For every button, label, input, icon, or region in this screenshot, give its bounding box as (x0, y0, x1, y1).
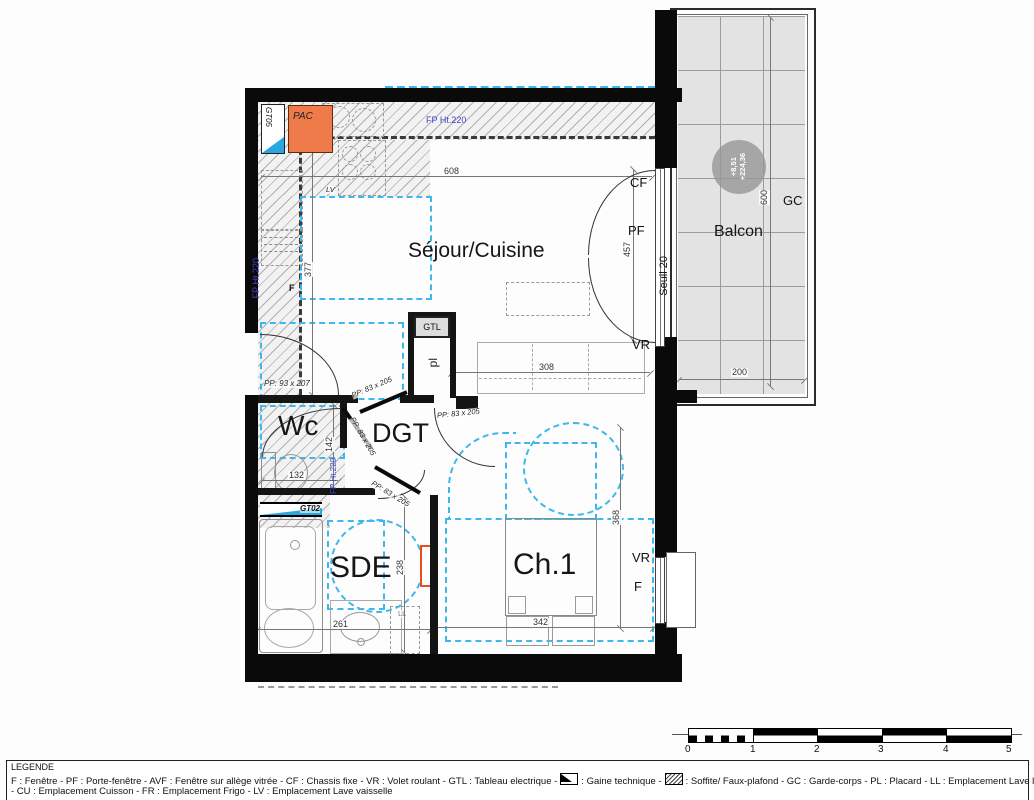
wall-left-lower (245, 395, 258, 682)
label-fp-wc: FP Ht.220 (330, 458, 338, 494)
window-ch1 (655, 557, 665, 624)
vanity-faucet (357, 638, 365, 646)
dim-142: 142 (324, 437, 335, 452)
label-vr-sejour: VR (632, 338, 650, 351)
label-cf: CF (630, 176, 647, 189)
floor-plan: +8,51 +224,36 Balcon GC 600 200 LV (0, 0, 1034, 800)
scalebar-tick-1: 1 (750, 744, 756, 755)
dim-261: 261 (332, 620, 349, 629)
dim-balcon-200: 200 (731, 368, 748, 377)
label-vr-ch1: VR (632, 551, 650, 564)
closet-pl-label: pl (426, 358, 440, 367)
legend-line-2: - CU : Emplacement Cuisson - FR : Emplac… (11, 786, 393, 798)
dim-457: 457 (622, 242, 633, 257)
dim-line-342 (433, 627, 653, 628)
dim-line-608 (262, 176, 652, 177)
bathtub-drain (290, 540, 300, 550)
wall-top (245, 88, 682, 102)
label-f-sejour: F (289, 284, 295, 293)
room-label-dgt: DGT (372, 420, 429, 447)
wall-bottom (245, 654, 682, 682)
kitchen-hob-ring (342, 164, 358, 180)
label-pf: PF (628, 224, 645, 237)
soffit-dash-bottom (258, 686, 558, 688)
radiator-outline (261, 230, 303, 266)
nightstand (552, 616, 595, 646)
label-ll: LL (398, 610, 406, 618)
legend-line1-b: : Gaine technique - (581, 776, 661, 787)
bathtub-inner (265, 526, 316, 610)
level-marker: +8,51 +224,36 (712, 140, 766, 194)
scalebar (688, 728, 1012, 743)
room-label-balcon: Balcon (714, 224, 763, 240)
legend-line1-c: : Soffite/ Faux-plafond - GC : Garde-cor… (686, 776, 1034, 787)
scalebar-seg-0 (689, 729, 753, 742)
dim-132: 132 (288, 471, 305, 480)
scalebar-tick-2: 2 (814, 744, 820, 755)
bed-corner (575, 596, 593, 614)
wall-right-upper (655, 10, 677, 168)
kitchen-sink-bowl-2 (352, 108, 376, 132)
sofa-divider (588, 344, 589, 390)
gtl-label: GTL (423, 322, 441, 332)
partition-sejour-south-left (258, 395, 358, 403)
dim-balcon-600: 600 (759, 190, 770, 205)
dim-308: 308 (538, 363, 555, 372)
gt02-label: GT02 (300, 504, 320, 513)
label-f-ch1: F (634, 580, 642, 593)
label-gc: GC (783, 194, 803, 207)
radiator-fin (264, 251, 298, 252)
dim-608: 608 (443, 167, 460, 176)
scalebar-seg-4 (946, 729, 1011, 742)
window-ch1-sill (666, 552, 696, 628)
label-fp-left: FP Ht.220 (252, 258, 261, 298)
dim-line-261 (258, 629, 430, 630)
room-label-wc: Wc (278, 412, 318, 440)
scalebar-tick-5: 5 (1006, 744, 1012, 755)
sofa-seat-line (479, 378, 641, 379)
dim-368: 368 (611, 510, 622, 525)
kitchen-hob-ring (360, 146, 376, 162)
wall-balcony-stub (677, 390, 697, 403)
scalebar-tick-3: 3 (878, 744, 884, 755)
gaine-technique-icon (560, 773, 578, 785)
scalebar-tick-4: 4 (943, 744, 949, 755)
scalebar-seg-2 (817, 729, 882, 742)
level-value-2: +224,36 (738, 153, 747, 180)
gt05-label: GT05 (264, 107, 273, 127)
fridge-outline (261, 170, 303, 230)
dim-line-132 (262, 480, 338, 481)
sofa-divider (532, 344, 533, 390)
room-label-sde: SDE (330, 553, 392, 583)
soffit-hatch-icon (665, 773, 683, 785)
label-fp-top: FP Ht.220 (426, 116, 466, 125)
scalebar-seg-3 (882, 729, 947, 742)
gaine-gt02: GT02 (260, 502, 322, 517)
dim-342: 342 (532, 618, 549, 627)
kitchen-hob-ring (360, 164, 376, 180)
sofa (477, 342, 645, 394)
room-label-sejour: Séjour/Cuisine (408, 240, 545, 261)
scalebar-tick-0: 0 (685, 744, 691, 755)
wall-right-lower (655, 622, 677, 682)
pac-unit: PAC (288, 105, 333, 153)
pac-label: PAC (293, 111, 313, 122)
bed-corner (508, 596, 526, 614)
dining-table (506, 282, 590, 316)
scalebar-seg-1 (753, 729, 818, 742)
wall-right-mid (655, 337, 677, 557)
balcony-dim-line-600 (770, 18, 771, 386)
legend-title: LEGENDE (11, 762, 54, 773)
closet-wall-right (450, 312, 456, 398)
dim-238: 238 (395, 560, 406, 575)
dim-line-308 (452, 372, 650, 373)
radiator-fin (264, 244, 298, 245)
gaine-gt05: GT05 (261, 104, 285, 154)
gtl-box: GTL (414, 316, 450, 338)
balcony-dim-line-200 (679, 379, 804, 380)
partition-dgt-sde (347, 488, 375, 495)
door-arc-pf-lower (588, 258, 655, 343)
partition-sde-ch1 (430, 495, 438, 654)
partition-sejour-south-right (400, 395, 434, 403)
room-label-ch1: Ch.1 (513, 550, 576, 580)
door-label-entrance: PP: 93 x 207 (264, 380, 310, 388)
cyan-rect-ch1-upper (505, 442, 597, 520)
bathtub-foot (264, 608, 314, 648)
dim-377: 377 (303, 262, 314, 277)
label-seuil-20: Seuil 20 (659, 256, 670, 296)
dim-line-368 (620, 428, 621, 628)
kitchen-hob-ring (342, 146, 358, 162)
label-lv: LV (326, 186, 335, 194)
radiator-fin (264, 237, 298, 238)
